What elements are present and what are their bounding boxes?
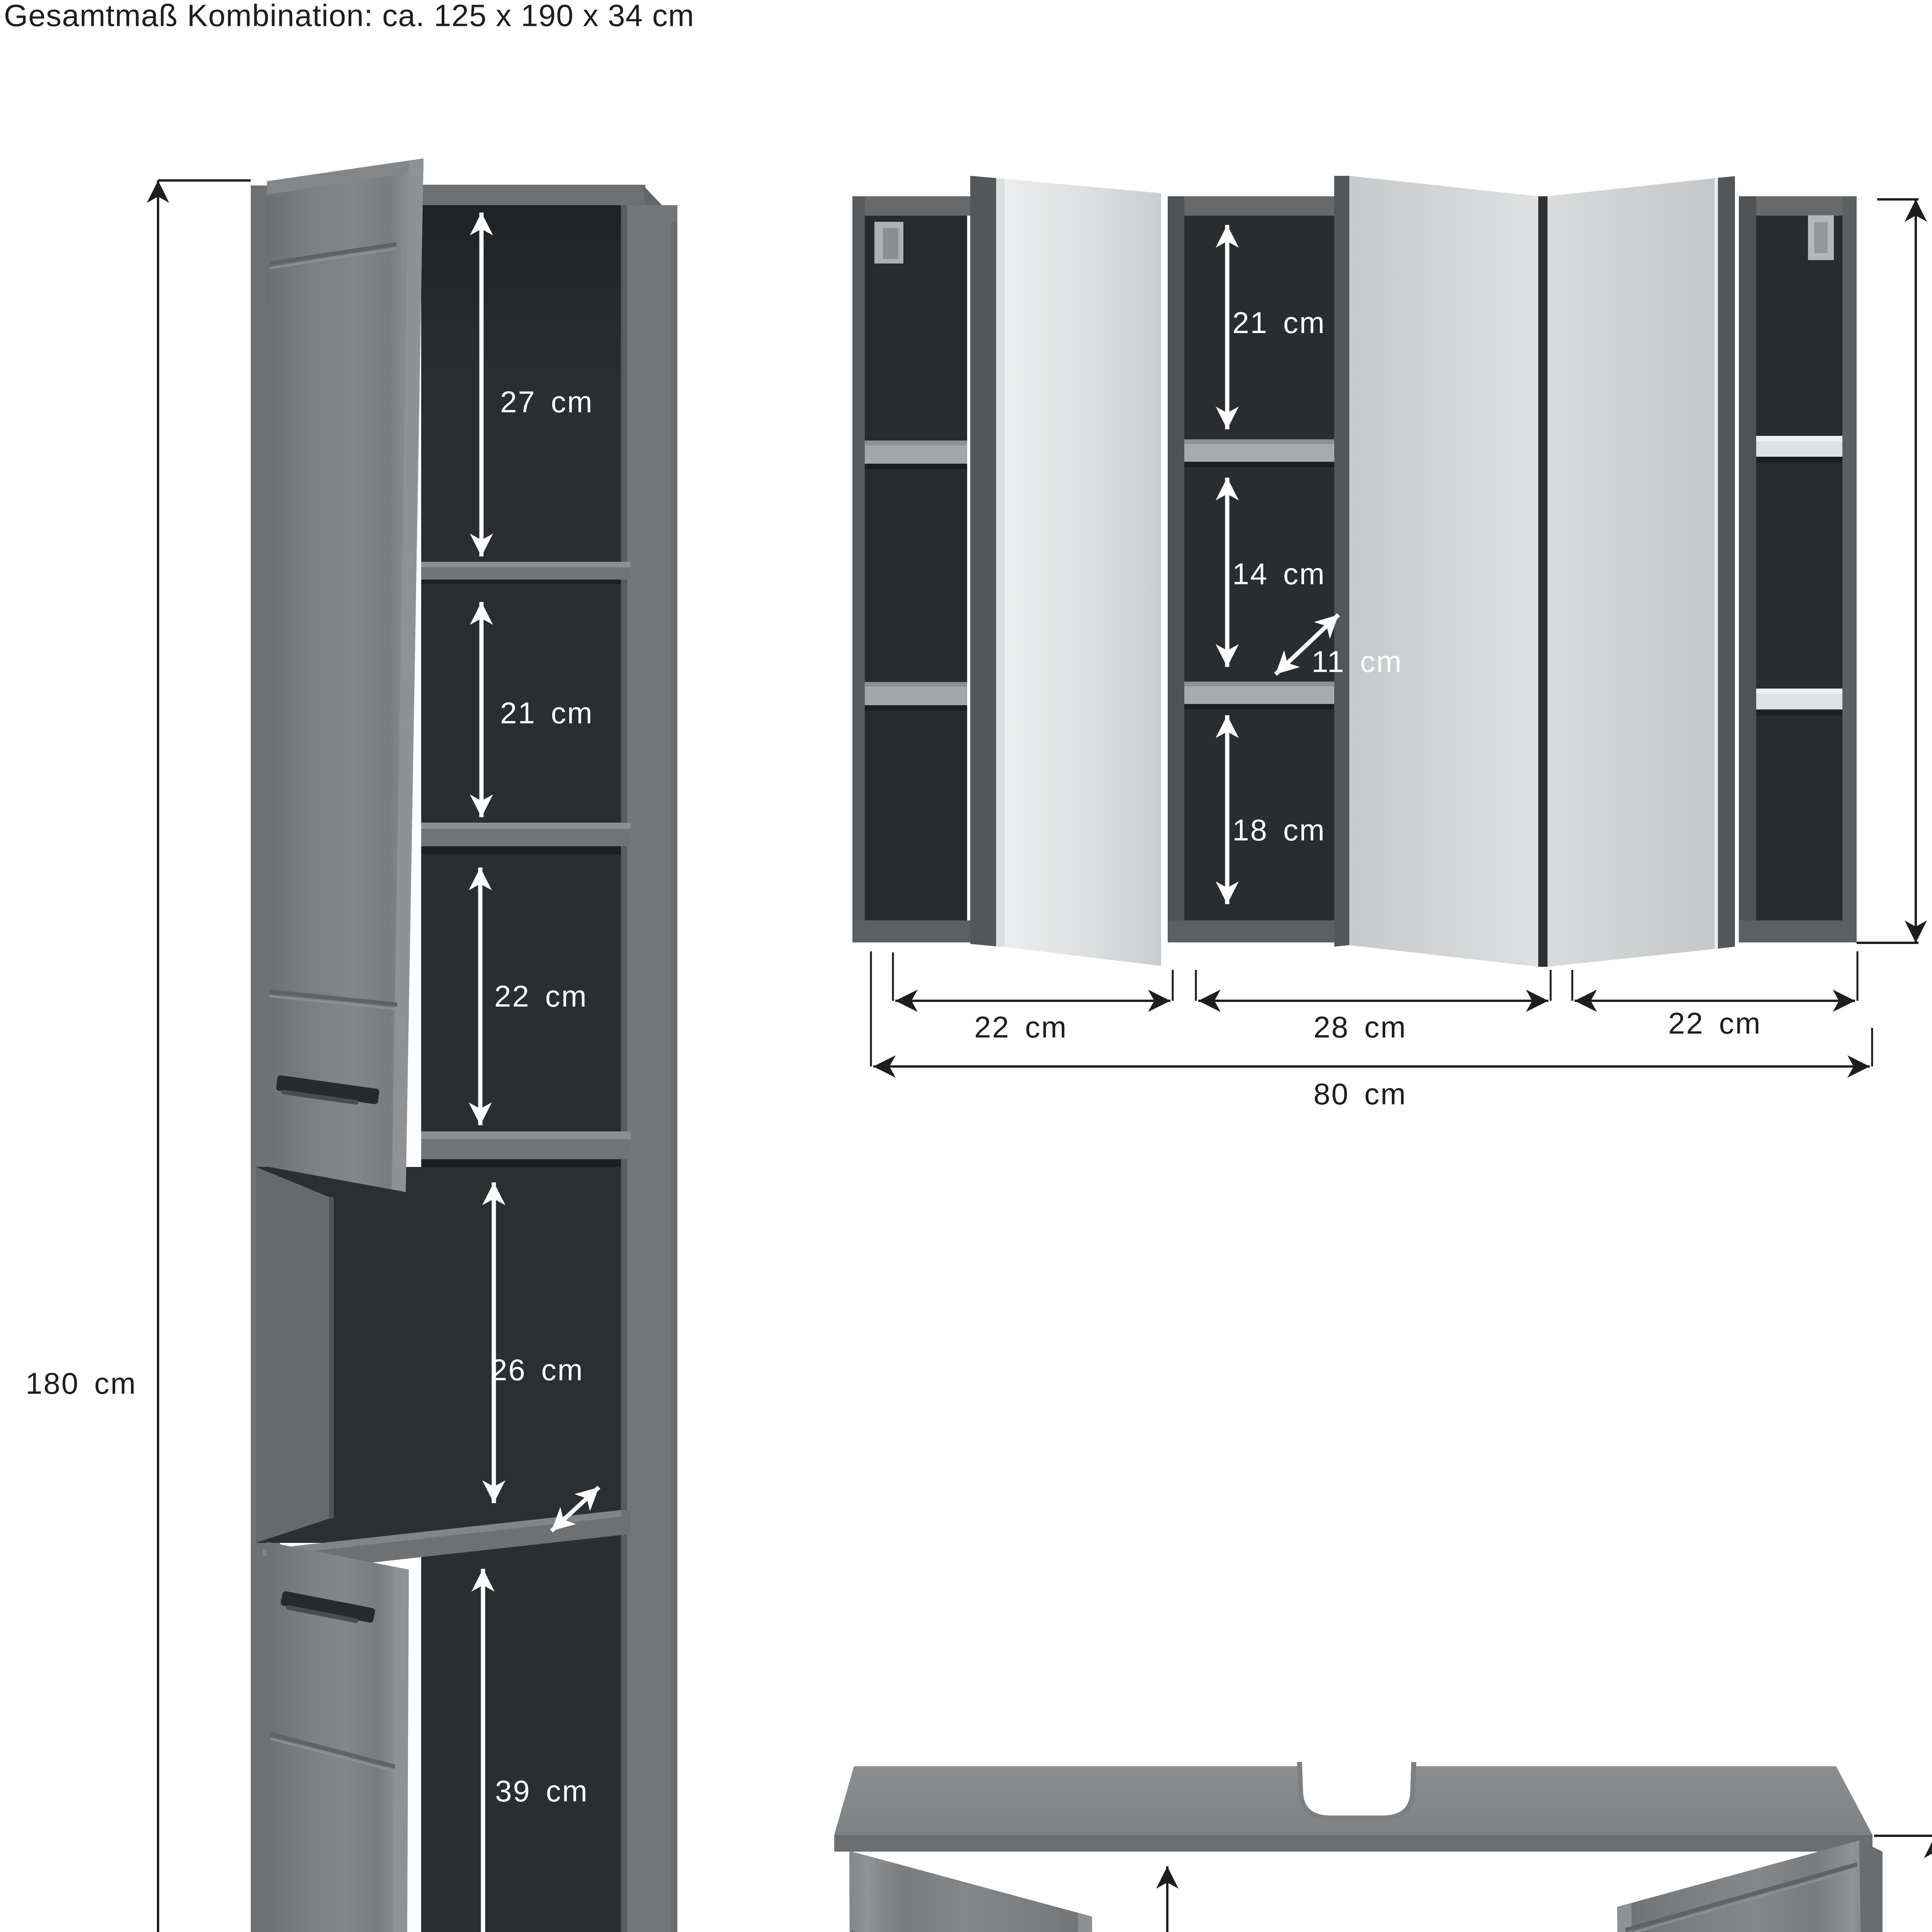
svg-text:27 cm: 27 cm: [500, 385, 593, 419]
svg-text:80 cm: 80 cm: [1313, 1077, 1406, 1111]
svg-text:22 cm: 22 cm: [974, 1010, 1067, 1044]
svg-text:28 cm: 28 cm: [1313, 1010, 1406, 1044]
svg-text:18 cm: 18 cm: [1232, 813, 1325, 847]
svg-text:Gesamtmaß Kombination: ca. 125: Gesamtmaß Kombination: ca. 125 x 190 x 3…: [4, 0, 694, 33]
svg-text:11 cm: 11 cm: [1311, 645, 1403, 679]
svg-text:14 cm: 14 cm: [1232, 557, 1325, 591]
svg-text:22 cm: 22 cm: [494, 979, 587, 1013]
svg-text:26 cm: 26 cm: [490, 1353, 583, 1387]
svg-text:21 cm: 21 cm: [500, 696, 593, 730]
svg-text:22 cm: 22 cm: [1668, 1006, 1761, 1040]
svg-text:21 cm: 21 cm: [1232, 306, 1325, 340]
svg-text:39 cm: 39 cm: [495, 1774, 588, 1808]
svg-text:180 cm: 180 cm: [26, 1366, 137, 1400]
